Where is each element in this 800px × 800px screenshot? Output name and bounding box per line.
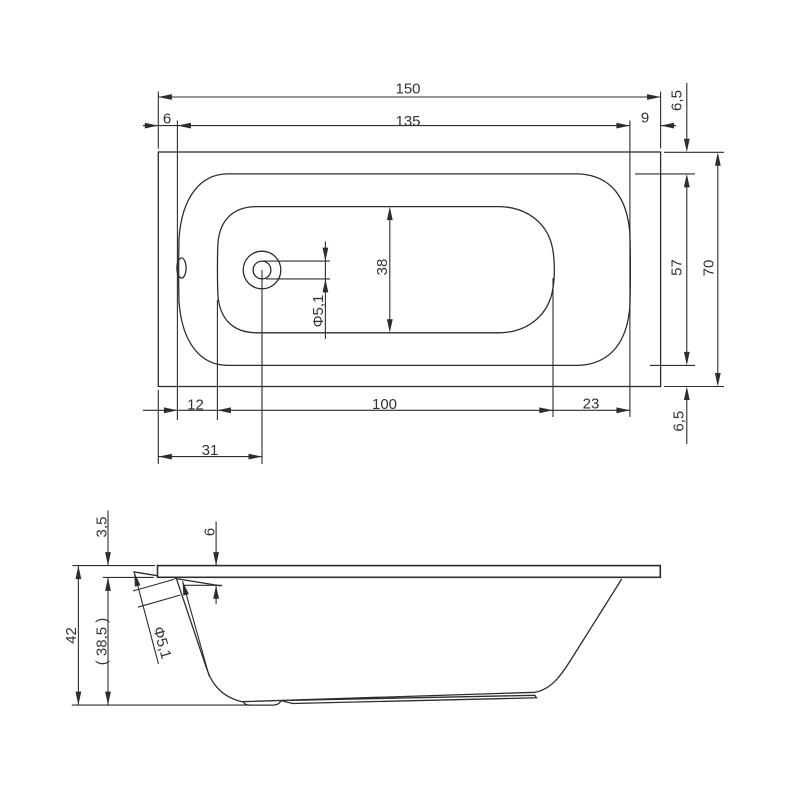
- svg-text:70: 70: [701, 260, 718, 277]
- svg-text:( 38,5 ): ( 38,5 ): [94, 618, 111, 666]
- svg-text:12: 12: [187, 397, 204, 414]
- svg-text:6: 6: [163, 111, 171, 128]
- svg-text:6,5: 6,5: [669, 90, 686, 111]
- svg-text:57: 57: [669, 259, 686, 276]
- svg-text:23: 23: [583, 396, 600, 413]
- svg-text:6: 6: [202, 528, 219, 536]
- svg-text:135: 135: [395, 113, 420, 130]
- svg-text:100: 100: [372, 396, 397, 413]
- svg-text:3,5: 3,5: [94, 517, 111, 538]
- svg-text:42: 42: [63, 627, 80, 644]
- svg-text:Φ5,1: Φ5,1: [310, 295, 327, 328]
- svg-text:31: 31: [202, 442, 219, 459]
- svg-text:38: 38: [374, 259, 391, 276]
- svg-text:9: 9: [641, 110, 649, 127]
- svg-text:6,5: 6,5: [671, 411, 688, 432]
- svg-text:150: 150: [395, 81, 420, 98]
